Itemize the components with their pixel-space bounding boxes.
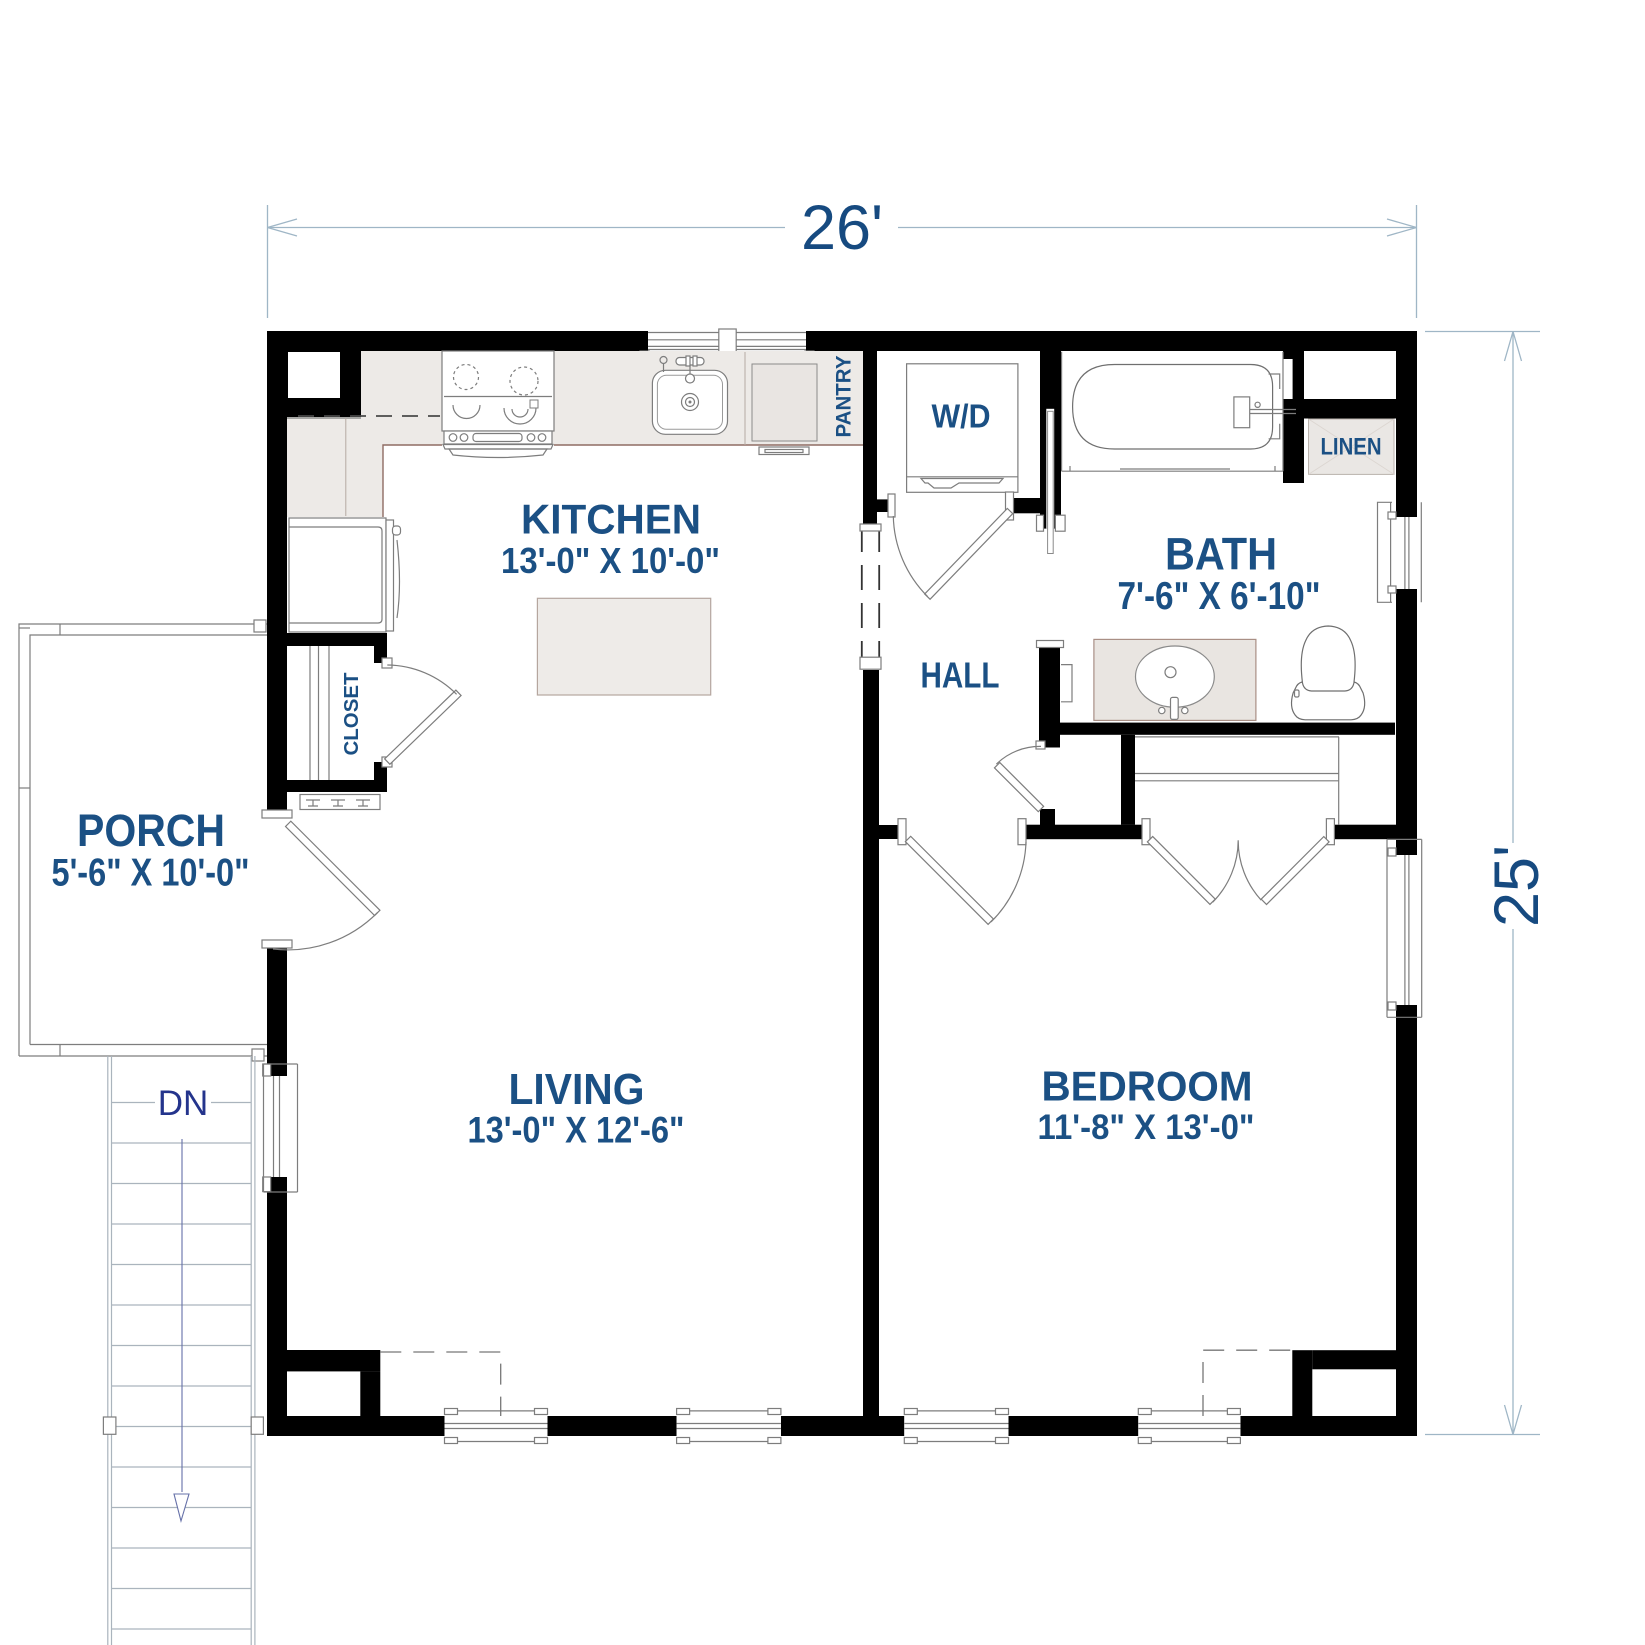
svg-text:DN: DN: [158, 1084, 209, 1123]
svg-text:LIVING: LIVING: [509, 1065, 645, 1114]
svg-text:BEDROOM: BEDROOM: [1042, 1063, 1253, 1110]
svg-text:BATH: BATH: [1165, 529, 1277, 580]
svg-text:PORCH: PORCH: [77, 805, 225, 856]
svg-text:PANTRY: PANTRY: [833, 356, 856, 438]
svg-text:7'-6" X 6'-10": 7'-6" X 6'-10": [1118, 575, 1321, 618]
svg-text:KITCHEN: KITCHEN: [521, 496, 701, 543]
svg-text:W/D: W/D: [932, 398, 991, 435]
svg-text:5'-6" X 10'-0": 5'-6" X 10'-0": [52, 852, 250, 895]
svg-text:LINEN: LINEN: [1321, 434, 1382, 461]
svg-text:HALL: HALL: [921, 655, 1000, 696]
svg-text:25': 25': [1482, 845, 1552, 927]
svg-text:CLOSET: CLOSET: [341, 673, 363, 756]
svg-text:11'-8" X 13'-0": 11'-8" X 13'-0": [1038, 1108, 1255, 1147]
svg-text:26': 26': [801, 193, 883, 263]
svg-text:13'-0" X 10'-0": 13'-0" X 10'-0": [501, 540, 720, 581]
svg-text:13'-0" X 12'-6": 13'-0" X 12'-6": [468, 1110, 685, 1151]
